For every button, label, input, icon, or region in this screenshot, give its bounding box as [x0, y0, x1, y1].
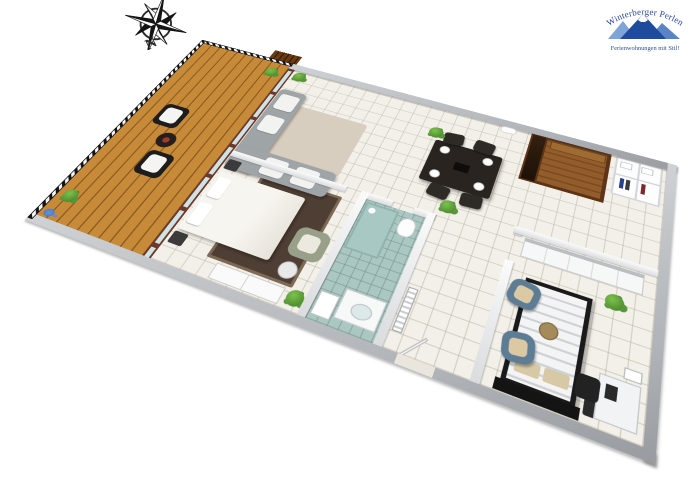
apartment-floorplan: [17, 40, 677, 479]
floor-plan-page: N Winterberger Perlen Ferienwohnungen mi…: [0, 0, 700, 500]
pillow: [542, 367, 570, 390]
floorplan-scene: [0, 0, 700, 500]
